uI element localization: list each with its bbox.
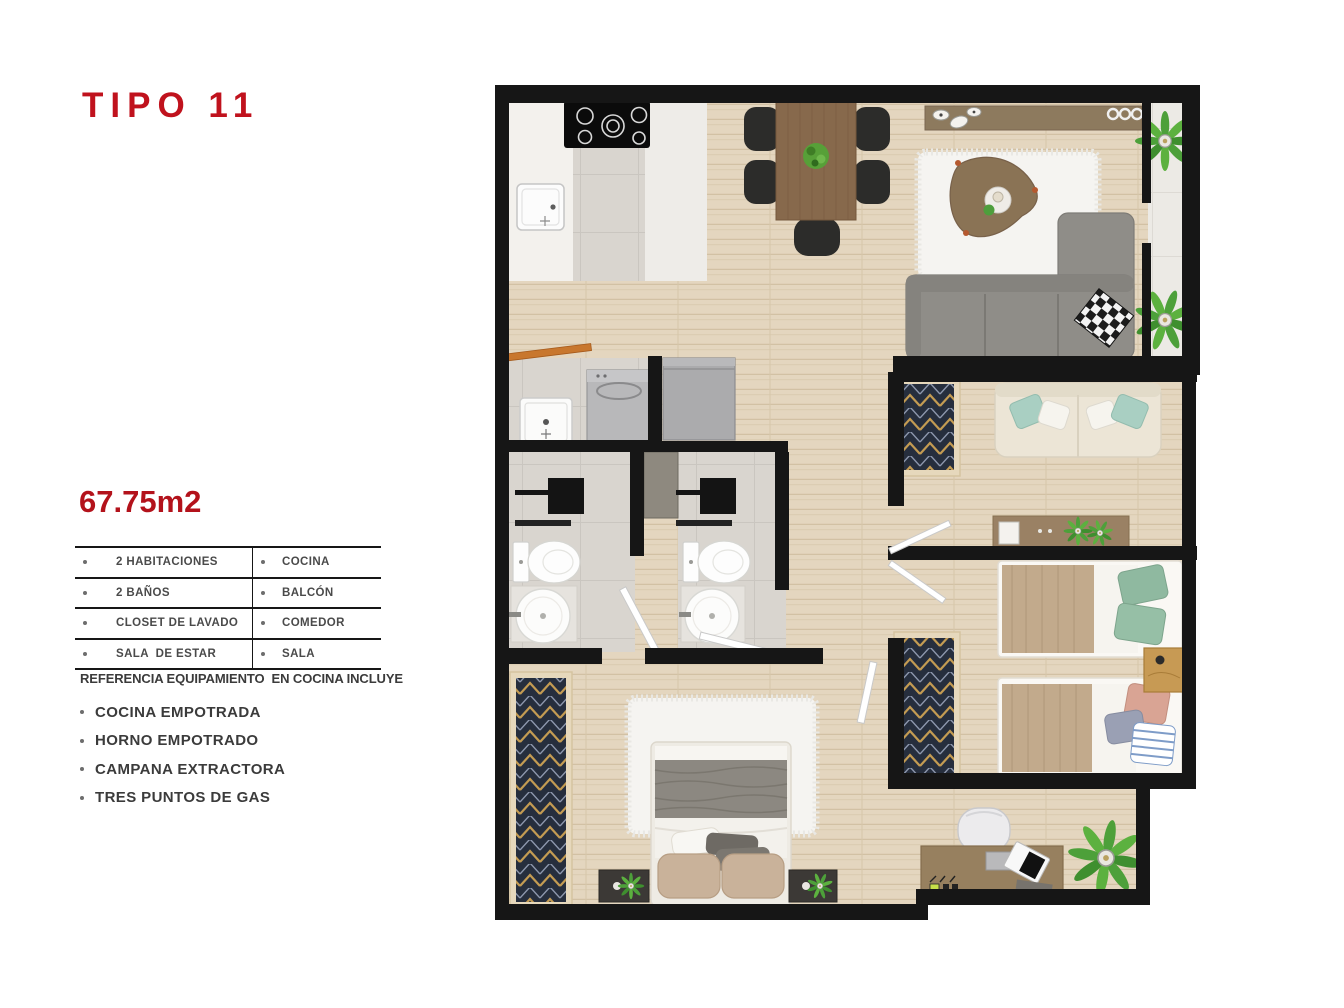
sideboard <box>993 515 1129 551</box>
floor-plan-sheet: TIPO 11 67.75m2 2 HABITACIONES COCINA 2 … <box>0 0 1344 1008</box>
shower-arm <box>676 490 702 495</box>
wall <box>645 648 823 664</box>
wall <box>888 773 1196 789</box>
shower-arm <box>515 490 548 495</box>
wall <box>495 648 602 664</box>
dining-chair <box>794 218 840 256</box>
blanket <box>1002 565 1094 653</box>
wall <box>495 440 662 452</box>
wall <box>648 356 662 452</box>
toilet <box>513 541 580 583</box>
pillow <box>722 854 784 898</box>
nightstand <box>599 870 649 902</box>
laundry-sink <box>520 398 572 446</box>
shower-head <box>548 478 584 514</box>
dining-chair <box>744 107 780 151</box>
shower-shelf <box>676 520 732 526</box>
wall <box>1182 358 1196 787</box>
nightstand <box>1144 648 1186 692</box>
wall <box>893 356 1197 382</box>
table-centerpiece-plant <box>803 143 829 169</box>
single-bed-1 <box>998 561 1182 657</box>
single-bed-2 <box>998 678 1182 776</box>
kitchen-sink <box>517 184 564 230</box>
loveseat <box>995 383 1161 457</box>
wall <box>916 889 1150 905</box>
pillow <box>1130 722 1176 766</box>
wall <box>888 546 1197 560</box>
wall <box>888 372 904 506</box>
kitchen-counter-right <box>645 95 707 281</box>
nightstand <box>789 868 838 903</box>
wall <box>495 85 509 920</box>
wall <box>662 441 788 452</box>
pillow <box>658 854 720 898</box>
wall <box>1136 781 1150 905</box>
toilet <box>683 541 750 583</box>
pillow <box>1113 602 1166 645</box>
wall <box>495 904 928 920</box>
shower-shelf <box>515 520 571 526</box>
wall <box>495 85 1200 103</box>
wardrobe-closet <box>510 672 572 908</box>
blanket <box>1002 684 1092 772</box>
dining-chair <box>744 160 780 204</box>
balcony-wall <box>1142 243 1151 361</box>
wall <box>1182 85 1200 375</box>
wall <box>888 638 904 777</box>
shower-head <box>700 478 736 514</box>
sideboard-plant <box>1064 517 1093 546</box>
wall <box>775 452 789 590</box>
dining-chair <box>854 107 890 151</box>
duct-shaft <box>644 452 678 518</box>
balcony-wall <box>1142 103 1151 203</box>
master-bed <box>651 742 791 906</box>
floor-plan-render <box>0 0 1344 1008</box>
washing-machine <box>587 370 651 444</box>
wall <box>630 452 644 556</box>
dining-chair <box>854 160 890 204</box>
vanity-sink <box>509 586 577 643</box>
refrigerator <box>663 358 735 440</box>
master-bedroom <box>510 672 838 908</box>
